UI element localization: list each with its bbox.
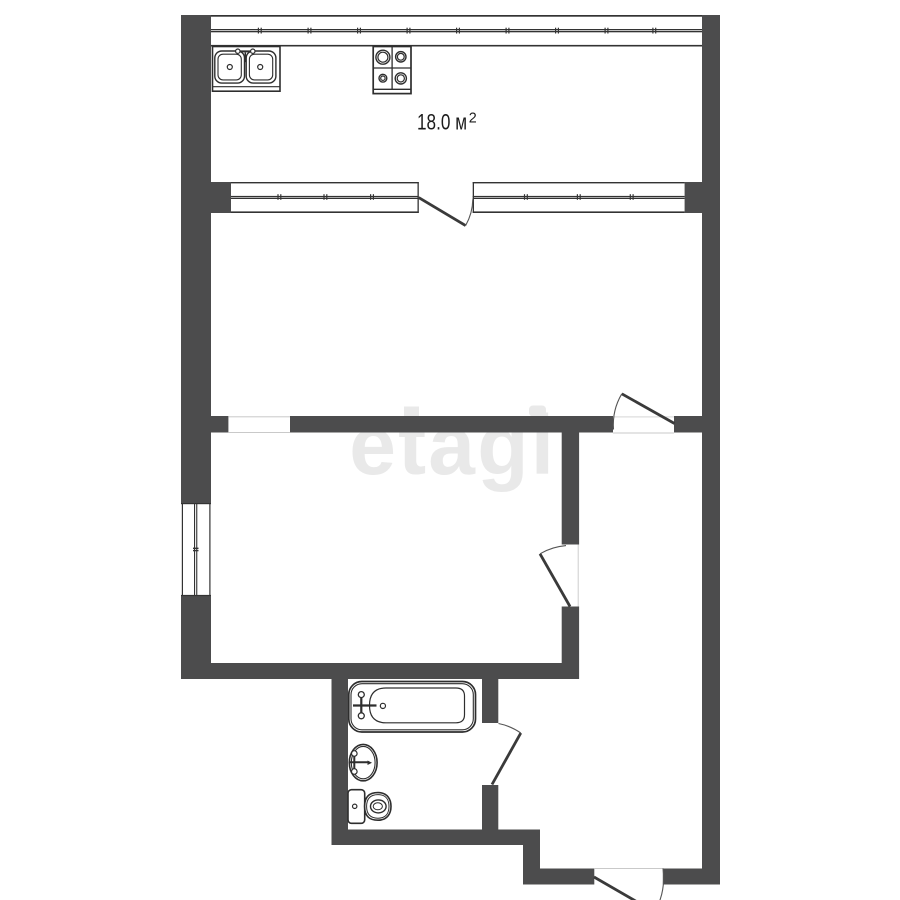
svg-text:etagi: etagi <box>349 398 556 492</box>
svg-text:2: 2 <box>469 110 477 126</box>
svg-text:18.0 м: 18.0 м <box>417 109 467 134</box>
